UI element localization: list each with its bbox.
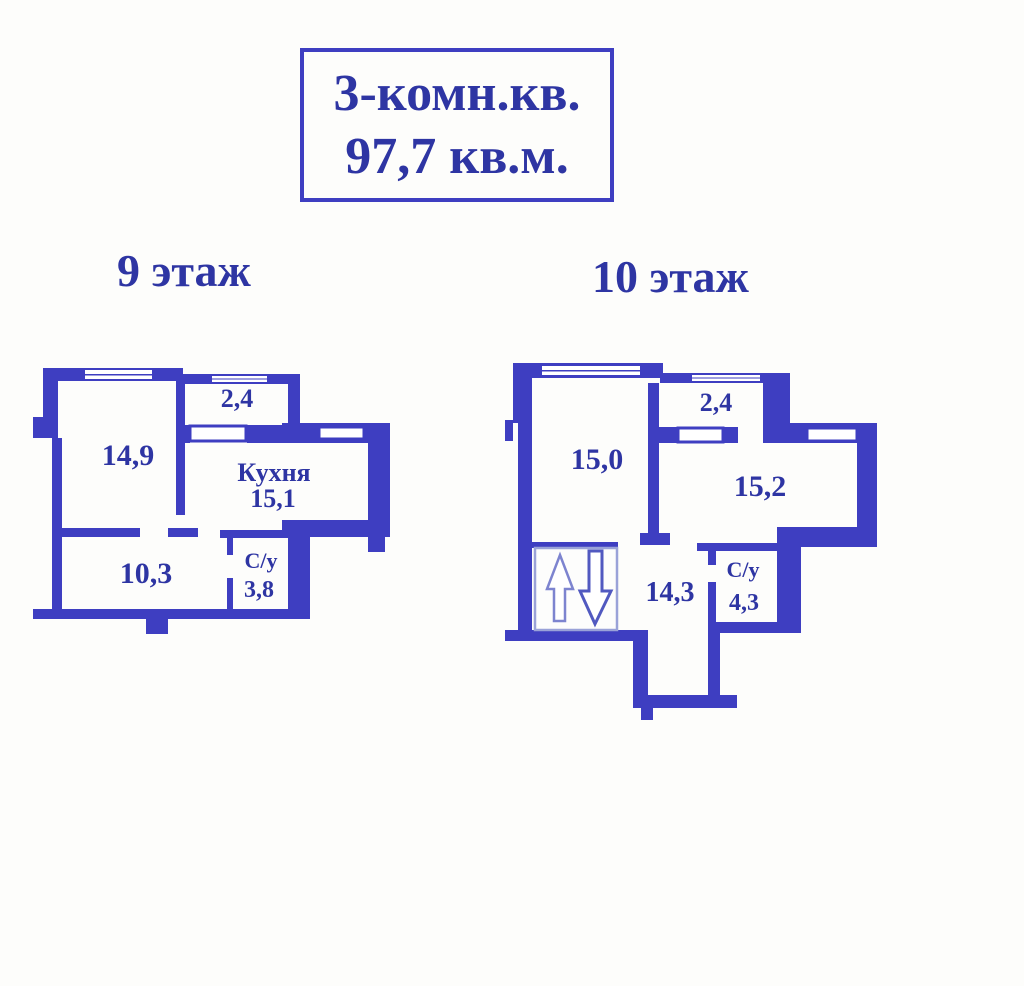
balcony-area-label: 2,4 <box>221 384 254 413</box>
hall-area-label: 14,3 <box>646 577 695 608</box>
opening-icon <box>190 426 246 441</box>
wall <box>368 443 390 537</box>
floor-10-plan: 15,0 2,4 15,2 14,3 С/у 4,3 <box>500 355 892 727</box>
title-line-area: 97,7 кв.м. <box>345 125 568 188</box>
title-line-rooms: 3-комн.кв. <box>333 62 580 125</box>
wall <box>708 633 720 695</box>
wall <box>713 622 801 633</box>
wall <box>777 527 801 633</box>
window-icon <box>319 427 364 439</box>
wall <box>288 520 310 619</box>
bath-area-label: 3,8 <box>244 577 274 603</box>
bath-area-label: 4,3 <box>729 590 759 616</box>
floorplan-page: { "title": { "line1": "3-комн.кв.", "lin… <box>0 0 1024 986</box>
wall <box>708 551 716 565</box>
wall <box>659 427 677 443</box>
balcony-area-label: 2,4 <box>700 388 733 417</box>
window-glass-line <box>85 374 152 376</box>
wall <box>640 533 670 545</box>
kitchen-name-label: Кухня <box>237 458 310 487</box>
wall <box>724 427 738 443</box>
wall <box>518 420 532 632</box>
title-box: 3-комн.кв. 97,7 кв.м. <box>300 48 614 202</box>
wall <box>513 363 532 423</box>
stairs-icon <box>535 548 617 630</box>
window-glass-line <box>212 378 267 379</box>
wall <box>227 538 233 555</box>
wall <box>505 420 513 441</box>
wall <box>641 708 653 720</box>
bath-name-label: С/у <box>245 548 278 573</box>
wall <box>697 543 777 551</box>
opening-icon <box>678 428 723 442</box>
window-glass-line <box>692 377 760 378</box>
floor-9-walls <box>33 368 390 634</box>
room2-area-label: 15,2 <box>734 470 787 503</box>
kitchen-area-label: 15,1 <box>250 484 296 513</box>
floor-10-heading: 10 этаж <box>592 250 749 303</box>
wall <box>146 619 168 634</box>
wall <box>43 368 58 438</box>
window-glass-line <box>542 370 640 372</box>
wall <box>52 438 62 611</box>
wall <box>368 537 385 552</box>
wall <box>648 383 659 533</box>
wall <box>33 609 310 619</box>
bath-name-label: С/у <box>727 557 760 582</box>
wall <box>633 695 737 708</box>
floor-9-heading: 9 этаж <box>117 244 251 297</box>
room-area-label: 14,9 <box>102 439 155 472</box>
hall-area-label: 10,3 <box>120 557 173 590</box>
wall <box>220 530 290 538</box>
floor-10-walls <box>505 363 877 720</box>
wall <box>33 417 43 438</box>
wall <box>57 528 140 537</box>
wall <box>168 528 198 537</box>
wall <box>505 630 648 641</box>
wall <box>176 381 185 515</box>
window-icon <box>807 428 857 441</box>
wall <box>247 425 288 443</box>
wall <box>288 374 300 425</box>
wall <box>763 373 790 425</box>
wall <box>227 578 233 609</box>
floor-9-room-labels: 14,9 2,4 Кухня 15,1 10,3 С/у 3,8 <box>102 384 311 603</box>
room-area-label: 15,0 <box>571 443 624 476</box>
floor-9-plan: 14,9 2,4 Кухня 15,1 10,3 С/у 3,8 <box>30 355 402 645</box>
